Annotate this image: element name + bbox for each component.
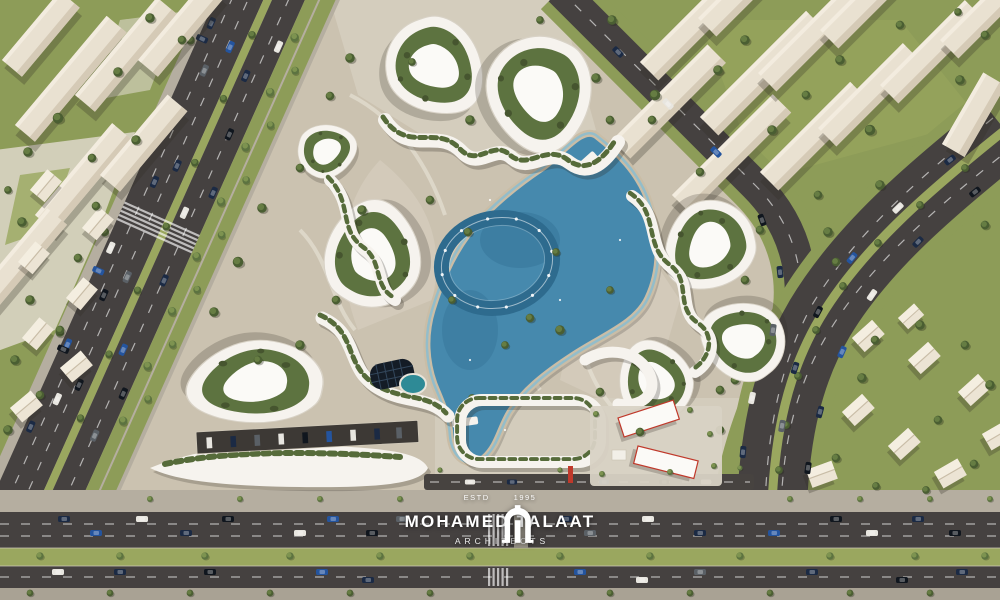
siteplan-canvas bbox=[0, 0, 1000, 600]
south-boulevard-road bbox=[0, 490, 1000, 600]
gas-station bbox=[568, 400, 722, 486]
garden-pond bbox=[400, 374, 426, 394]
red-sign bbox=[568, 466, 573, 483]
pedestrian-refuge bbox=[514, 512, 528, 548]
masterplan-render: ESTD 1995 MOHAMED TALAAT ARCHITECTS bbox=[0, 0, 1000, 600]
